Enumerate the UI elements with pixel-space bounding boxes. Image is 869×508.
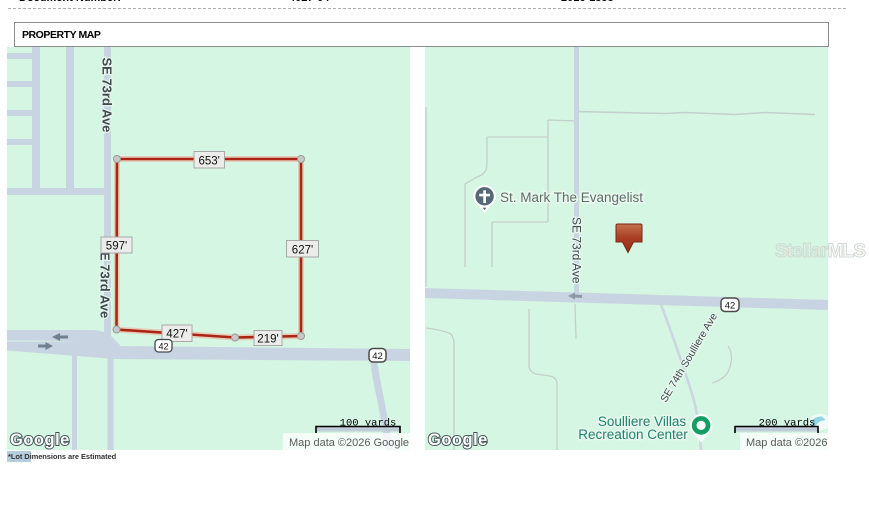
- svg-text:627': 627': [292, 245, 313, 257]
- svg-text:Google: Google: [10, 431, 70, 449]
- svg-text:Recreation Center: Recreation Center: [578, 427, 688, 442]
- svg-text:42: 42: [372, 351, 383, 362]
- svg-text:653': 653': [199, 156, 220, 168]
- svg-text:42: 42: [158, 342, 168, 352]
- svg-text:Google: Google: [428, 431, 488, 449]
- svg-text:427': 427': [166, 329, 187, 341]
- svg-text:E 73rd Ave: E 73rd Ave: [98, 252, 113, 318]
- svg-text:597': 597': [106, 241, 127, 253]
- svg-text:SE 73rd Ave: SE 73rd Ave: [570, 217, 584, 284]
- svg-text:SE 73rd Ave: SE 73rd Ave: [100, 58, 115, 133]
- svg-text:St. Mark The Evangelist: St. Mark The Evangelist: [500, 190, 643, 205]
- svg-text:219': 219': [257, 334, 278, 346]
- svg-text:42: 42: [725, 301, 736, 312]
- svg-text:Map data ©2026: Map data ©2026: [746, 437, 828, 449]
- svg-text:Map data ©2026 Google: Map data ©2026 Google: [289, 437, 409, 449]
